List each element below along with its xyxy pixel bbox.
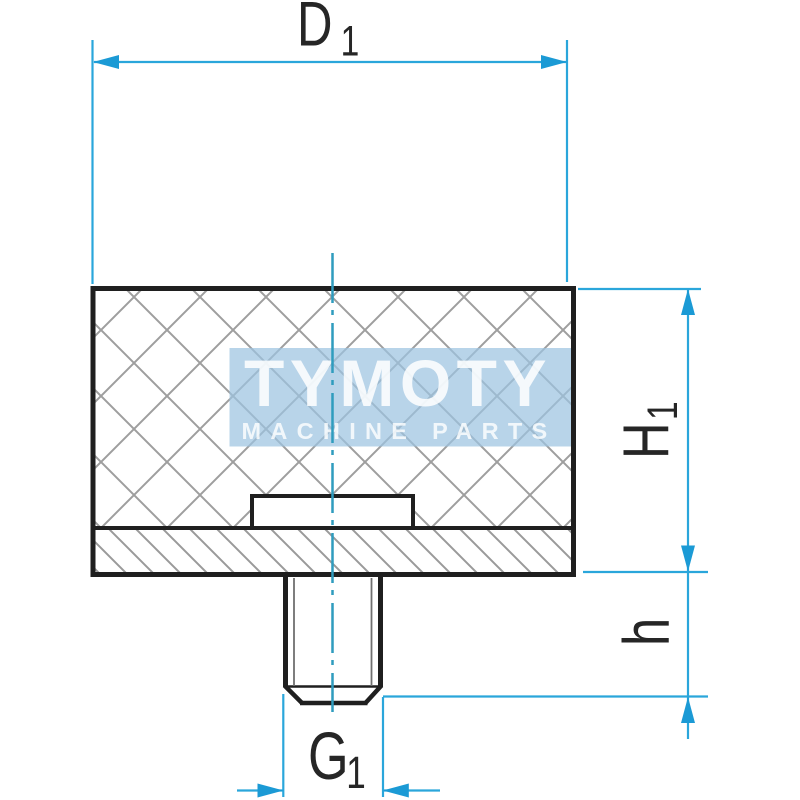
svg-text:G: G bbox=[308, 719, 349, 794]
svg-text:H: H bbox=[610, 422, 682, 459]
svg-text:h: h bbox=[611, 618, 683, 646]
svg-text:1: 1 bbox=[639, 401, 687, 420]
svg-text:1: 1 bbox=[341, 18, 360, 66]
svg-text:TYMOTY: TYMOTY bbox=[244, 346, 552, 420]
svg-text:D: D bbox=[297, 0, 332, 59]
svg-text:MACHINE PARTS: MACHINE PARTS bbox=[242, 418, 557, 444]
svg-text:1: 1 bbox=[346, 747, 366, 798]
